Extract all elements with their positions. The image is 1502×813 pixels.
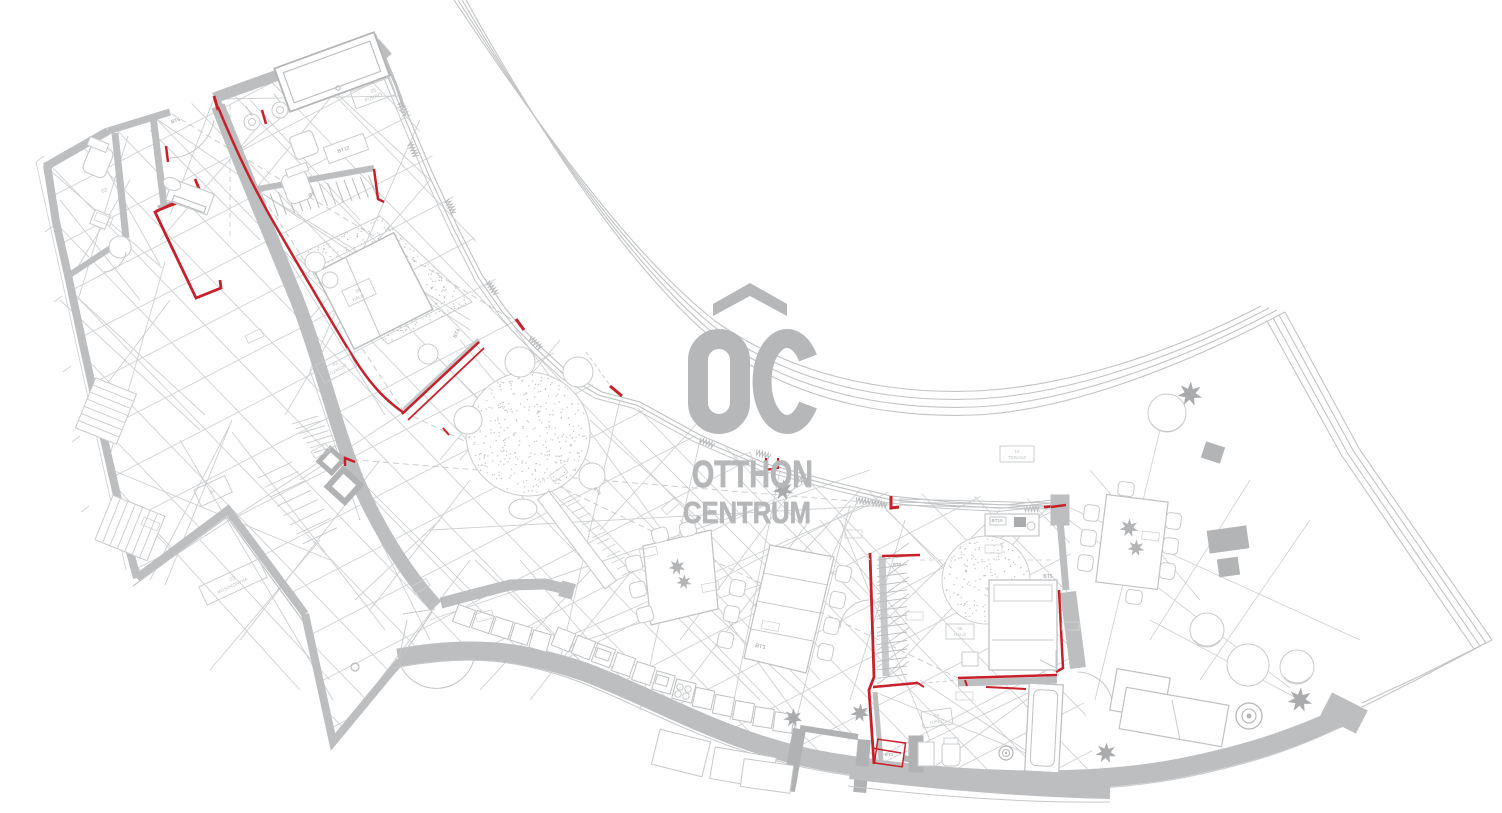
svg-text:OTTHON: OTTHON — [692, 454, 813, 496]
svg-text:BT1: BT1 — [885, 752, 894, 757]
svg-text:06: 06 — [957, 626, 963, 631]
svg-text:HÁLÓ: HÁLÓ — [954, 631, 967, 637]
svg-text:BT10: BT10 — [991, 518, 1003, 523]
svg-text:10: 10 — [1014, 449, 1020, 454]
svg-text:TERASZ: TERASZ — [1008, 455, 1026, 460]
svg-text:BT8: BT8 — [893, 562, 902, 567]
svg-text:CENTRUM: CENTRUM — [683, 495, 811, 530]
svg-text:BT5: BT5 — [1043, 574, 1053, 580]
